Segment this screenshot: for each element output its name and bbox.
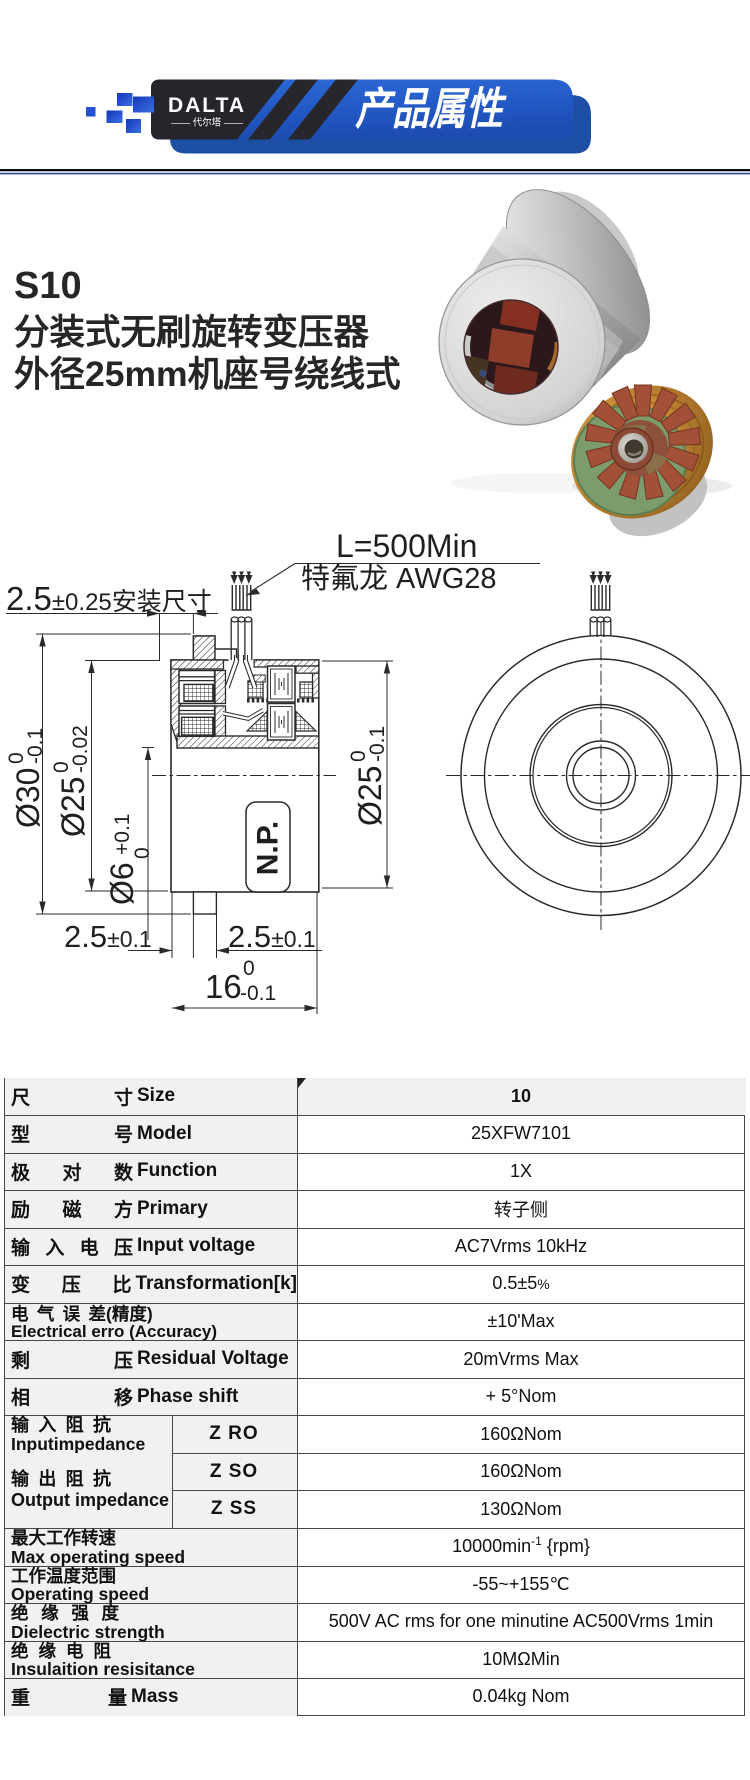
svg-text:产品属性: 产品属性 [355,84,507,134]
svg-text:Ø6: Ø6 [104,862,140,905]
svg-text:L=500Min: L=500Min [336,528,477,564]
svg-text:-0.1: -0.1 [366,726,389,762]
svg-text:N.P.: N.P. [252,821,285,875]
svg-text:Ø30: Ø30 [10,768,46,828]
svg-text:特氟龙 AWG28: 特氟龙 AWG28 [301,562,497,595]
svg-text:—— 代尔塔 ——: —— 代尔塔 —— [171,117,243,129]
svg-text:-0.02: -0.02 [69,725,92,773]
svg-text:Ø25: Ø25 [352,766,388,826]
svg-text:0: 0 [243,957,255,980]
svg-text:-0.1: -0.1 [240,982,276,1005]
svg-text:16: 16 [205,968,242,1005]
svg-text:-0.1: -0.1 [24,728,47,764]
svg-text:DALTA: DALTA [168,94,246,117]
svg-text:2.5±0.1: 2.5±0.1 [64,919,152,954]
svg-text:0: 0 [131,847,154,859]
svg-text:2.5±0.1: 2.5±0.1 [228,919,316,954]
svg-text:Ø25: Ø25 [55,777,91,837]
svg-text:2.5±0.25安装尺寸: 2.5±0.25安装尺寸 [6,580,212,617]
